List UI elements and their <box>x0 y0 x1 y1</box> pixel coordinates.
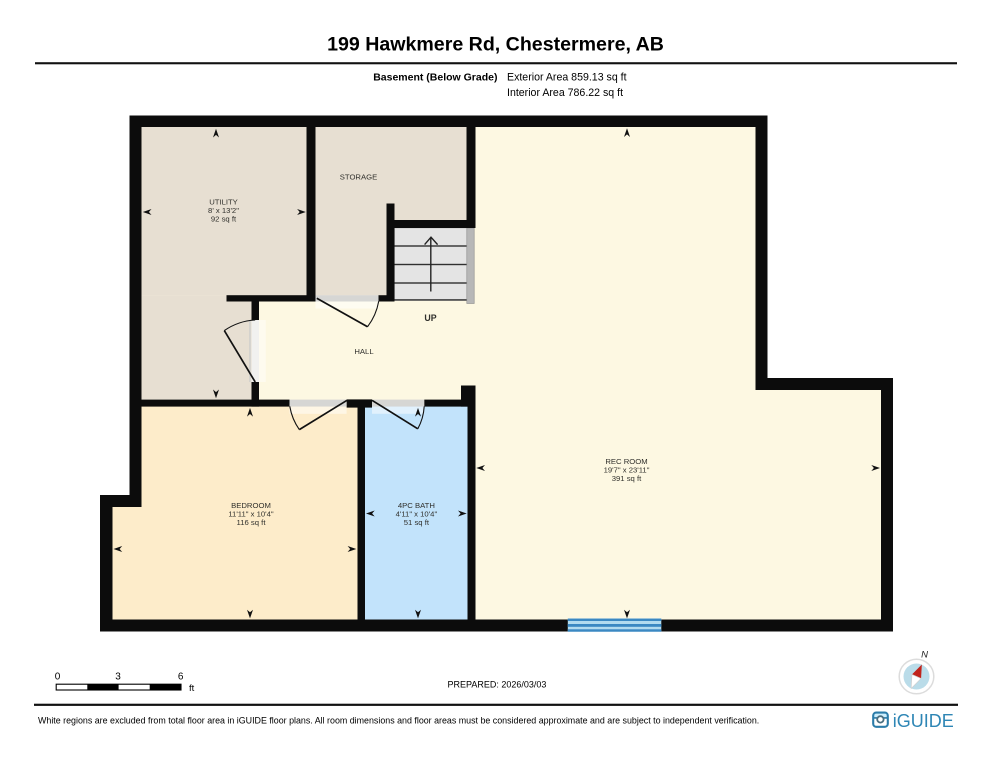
svg-text:Interior Area 786.22 sq ft: Interior Area 786.22 sq ft <box>507 87 623 99</box>
svg-text:ft: ft <box>189 683 195 694</box>
svg-text:iGUIDE: iGUIDE <box>893 711 954 731</box>
svg-text:STORAGE: STORAGE <box>340 173 377 182</box>
svg-text:White regions are excluded fro: White regions are excluded from total fl… <box>38 716 759 726</box>
svg-text:PREPARED: 2026/03/03: PREPARED: 2026/03/03 <box>448 680 547 690</box>
svg-text:116 sq ft: 116 sq ft <box>237 518 267 527</box>
svg-text:Exterior Area 859.13 sq ft: Exterior Area 859.13 sq ft <box>507 71 627 83</box>
svg-text:391 sq ft: 391 sq ft <box>612 474 642 483</box>
svg-text:Basement (Below Grade): Basement (Below Grade) <box>373 71 497 83</box>
svg-text:UP: UP <box>424 313 436 323</box>
svg-text:92 sq ft: 92 sq ft <box>211 215 237 224</box>
svg-text:199 Hawkmere Rd, Chestermere,: 199 Hawkmere Rd, Chestermere, AB <box>327 34 664 56</box>
svg-text:N: N <box>921 650 928 661</box>
svg-text:0: 0 <box>55 672 61 683</box>
svg-text:51 sq ft: 51 sq ft <box>404 518 430 527</box>
svg-text:6: 6 <box>178 672 184 683</box>
svg-text:HALL: HALL <box>354 347 374 356</box>
svg-text:3: 3 <box>115 672 121 683</box>
